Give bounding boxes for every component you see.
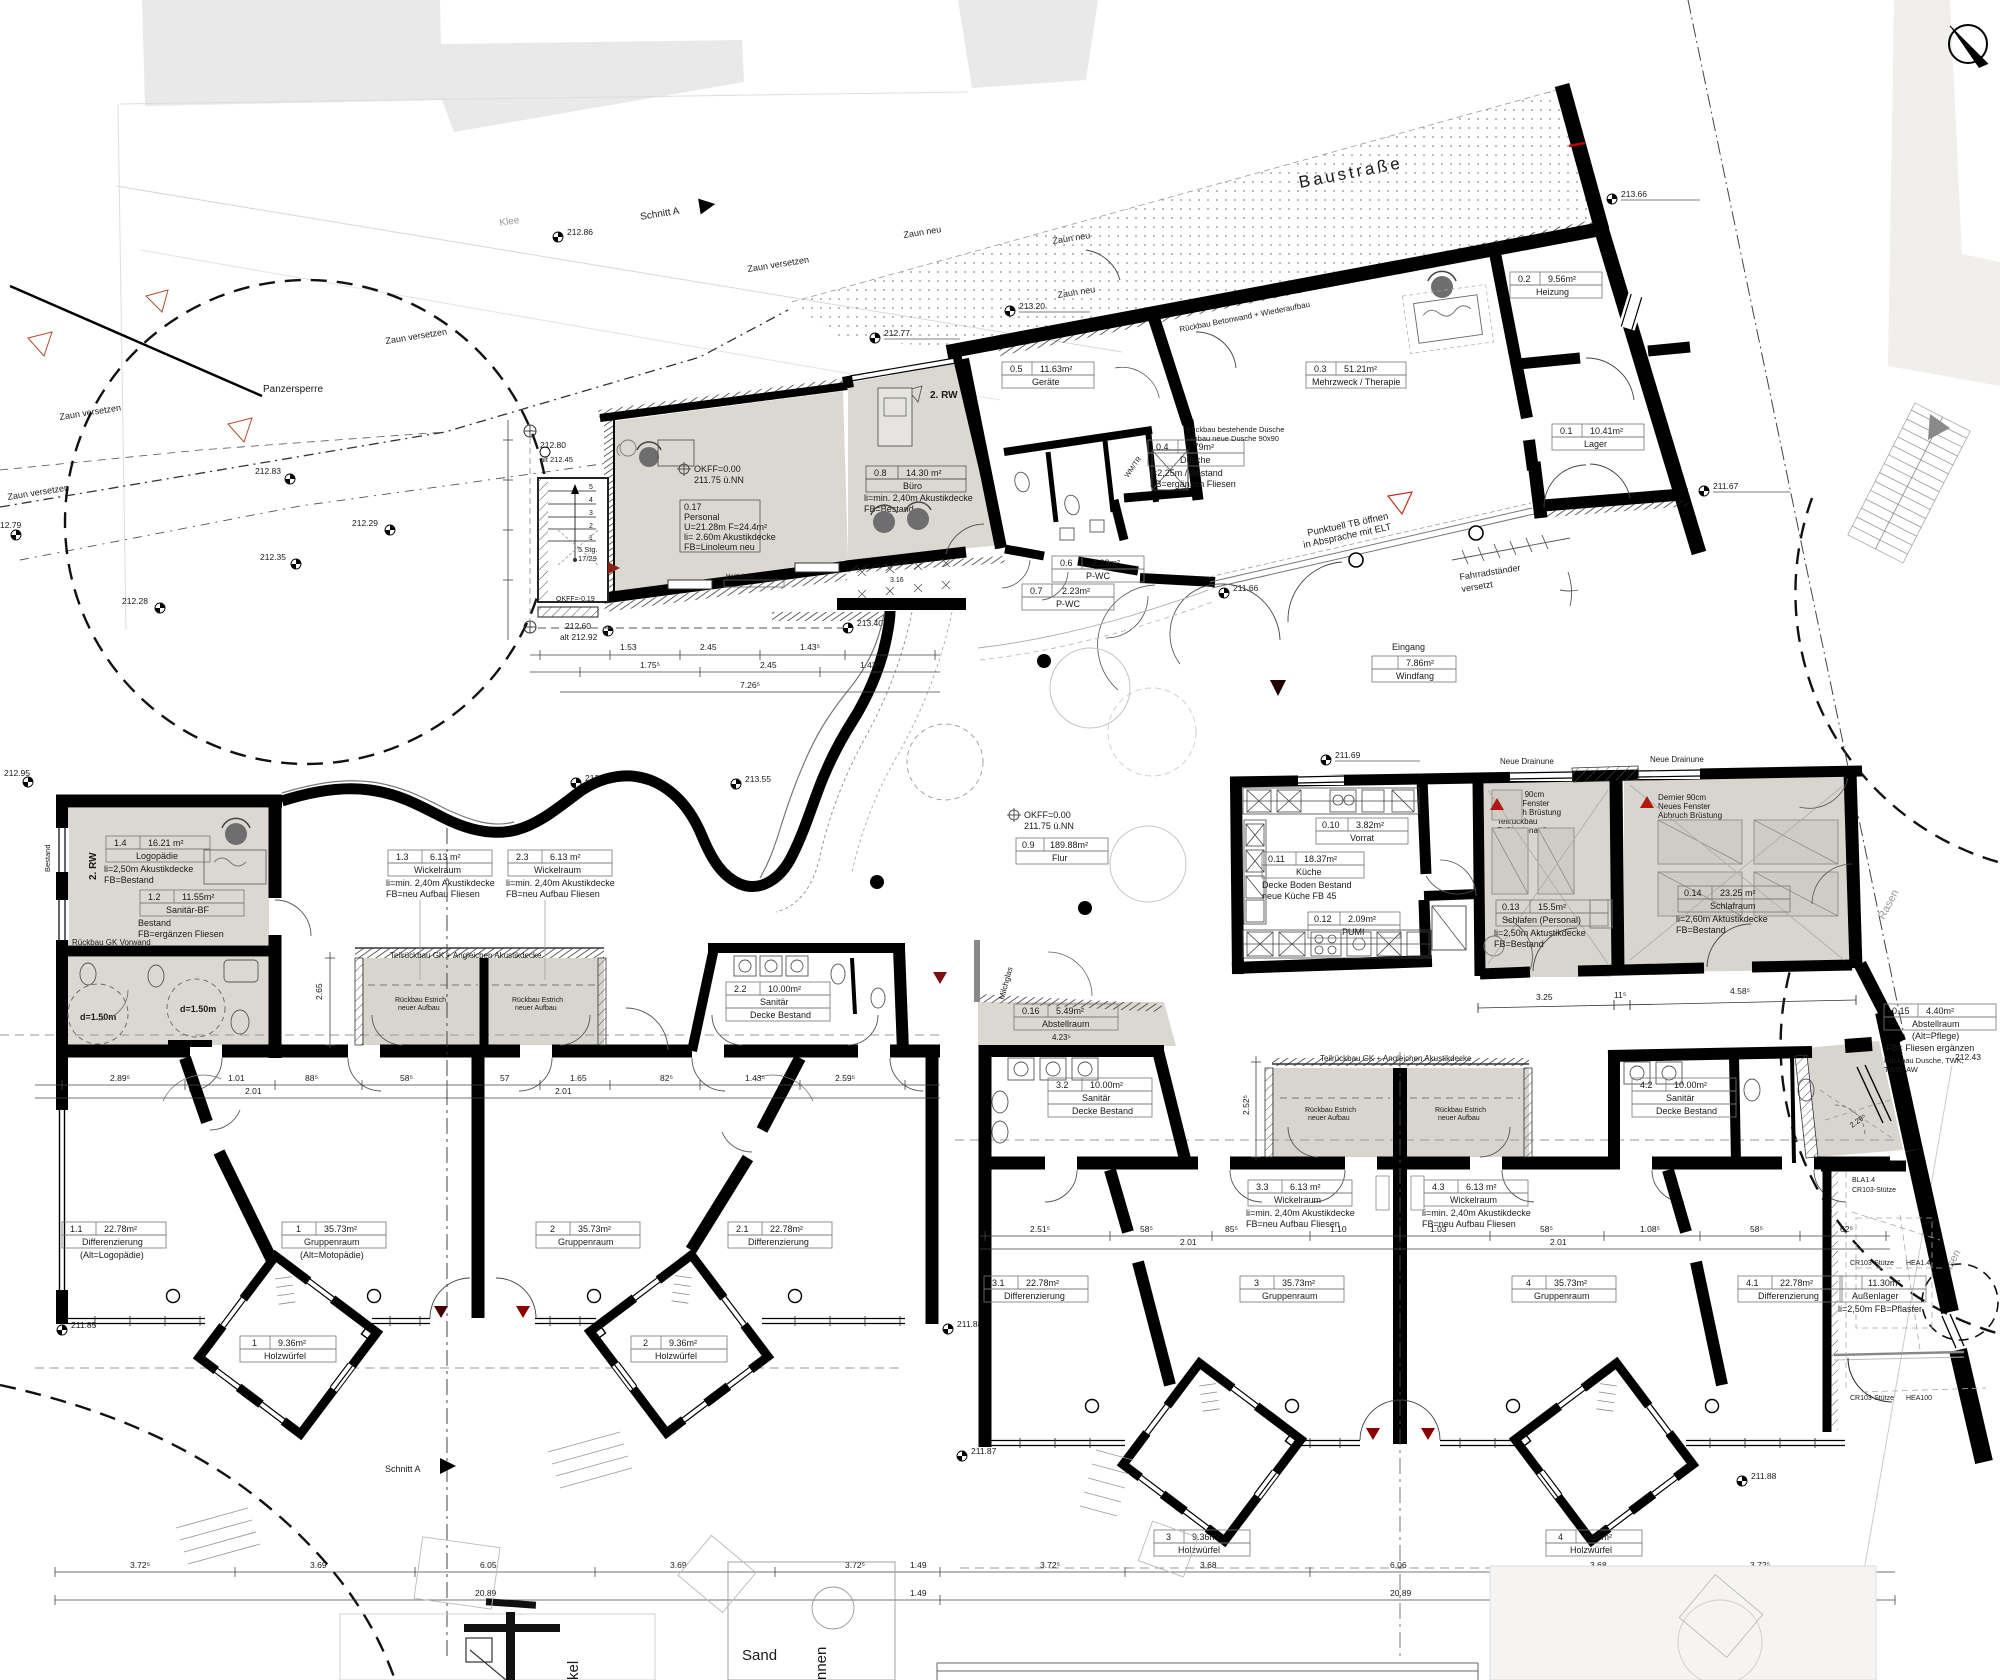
svg-text:0.13: 0.13 xyxy=(1502,902,1520,912)
svg-text:213.66: 213.66 xyxy=(1621,189,1647,199)
svg-text:2.1: 2.1 xyxy=(736,1224,749,1234)
svg-text:2: 2 xyxy=(550,1224,555,1234)
svg-text:1.10: 1.10 xyxy=(1330,1224,1347,1234)
svg-text:211.85: 211.85 xyxy=(71,1320,97,1330)
svg-text:11.30m²: 11.30m² xyxy=(1868,1278,1900,1288)
svg-text:9.56m²: 9.56m² xyxy=(1548,274,1576,284)
svg-text:7.26⁵: 7.26⁵ xyxy=(740,680,760,690)
svg-text:212.95: 212.95 xyxy=(4,768,30,778)
svg-text:1.1: 1.1 xyxy=(70,1224,83,1234)
svg-text:1.03: 1.03 xyxy=(1430,1224,1447,1234)
svg-text:22.78m²: 22.78m² xyxy=(1780,1278,1813,1288)
svg-text:212.86: 212.86 xyxy=(567,227,593,237)
svg-text:Rückbau Estrich: Rückbau Estrich xyxy=(395,997,446,1004)
svg-text:3.16: 3.16 xyxy=(890,577,904,584)
svg-text:211.67: 211.67 xyxy=(1713,481,1739,491)
svg-text:5.49m²: 5.49m² xyxy=(1056,1006,1084,1016)
svg-text:Holzwürfel: Holzwürfel xyxy=(1178,1545,1220,1555)
svg-text:Büro: Büro xyxy=(903,481,922,491)
svg-text:1.43⁵: 1.43⁵ xyxy=(745,1073,765,1083)
svg-text:1.3: 1.3 xyxy=(396,852,409,862)
svg-text:212.29: 212.29 xyxy=(352,518,378,528)
svg-text:Vorrat: Vorrat xyxy=(1350,833,1375,843)
svg-text:Schlafraum: Schlafraum xyxy=(1710,901,1756,911)
svg-text:d=1.50m: d=1.50m xyxy=(180,1004,216,1014)
svg-text:11.55m²: 11.55m² xyxy=(182,892,214,902)
svg-text:neuer Aufbau: neuer Aufbau xyxy=(515,1005,557,1012)
svg-text:6.05: 6.05 xyxy=(480,1560,497,1570)
svg-text:1.49: 1.49 xyxy=(910,1588,927,1598)
svg-text:Rückbau GK Vorwand: Rückbau GK Vorwand xyxy=(72,938,151,947)
svg-text:82⁵: 82⁵ xyxy=(660,1073,673,1083)
svg-text:3: 3 xyxy=(1166,1532,1171,1542)
svg-text:Holzwürfel: Holzwürfel xyxy=(655,1351,697,1361)
svg-text:FB=ergänzen Fliesen: FB=ergänzen Fliesen xyxy=(1150,479,1236,489)
svg-text:212.35: 212.35 xyxy=(260,552,286,562)
svg-text:0.17: 0.17 xyxy=(684,502,702,512)
svg-text:3.79m²: 3.79m² xyxy=(1186,442,1214,452)
svg-text:3.72⁵: 3.72⁵ xyxy=(130,1560,150,1570)
svg-text:FB=Bestand: FB=Bestand xyxy=(104,875,154,885)
svg-text:10.41m²: 10.41m² xyxy=(1590,426,1623,436)
svg-text:211.87: 211.87 xyxy=(971,1446,997,1456)
svg-text:OKFF=0.00: OKFF=0.00 xyxy=(694,464,741,474)
svg-text:Holzwürfel: Holzwürfel xyxy=(264,1351,306,1361)
svg-text:li=min. 2,40m Akustikdecke: li=min. 2,40m Akustikdecke xyxy=(1246,1208,1355,1218)
svg-text:0.4: 0.4 xyxy=(1156,442,1169,452)
svg-text:58⁵: 58⁵ xyxy=(1750,1224,1763,1234)
svg-text:Bestand: Bestand xyxy=(138,918,171,928)
svg-text:0.11: 0.11 xyxy=(1268,854,1285,864)
svg-text:2.09m²: 2.09m² xyxy=(1348,914,1376,924)
svg-text:22.78m²: 22.78m² xyxy=(1026,1278,1059,1288)
svg-text:Rückbau Dusche, TWK,: Rückbau Dusche, TWK, xyxy=(1884,1056,1964,1065)
svg-text:22.78m²: 22.78m² xyxy=(770,1224,803,1234)
svg-text:Dernier 90cm: Dernier 90cm xyxy=(1658,793,1706,802)
svg-text:211.75 ü.NN: 211.75 ü.NN xyxy=(1024,821,1074,831)
svg-text:Außenlager: Außenlager xyxy=(1852,1291,1899,1301)
svg-text:2: 2 xyxy=(589,523,593,530)
svg-text:6.13 m²: 6.13 m² xyxy=(1290,1182,1321,1192)
svg-text:neuer Aufbau: neuer Aufbau xyxy=(398,1005,440,1012)
svg-text:211.75 ü.NN: 211.75 ü.NN xyxy=(694,475,744,485)
svg-text:Holzwürfel: Holzwürfel xyxy=(1570,1545,1612,1555)
svg-text:3.82m²: 3.82m² xyxy=(1356,820,1384,830)
svg-text:211.88: 211.88 xyxy=(1751,1471,1777,1481)
svg-text:Windfang: Windfang xyxy=(1396,671,1434,681)
svg-text:1.08⁵: 1.08⁵ xyxy=(1640,1224,1660,1234)
svg-text:FB= Fliesen ergänzen: FB= Fliesen ergänzen xyxy=(1886,1043,1974,1053)
svg-text:alt 212.92: alt 212.92 xyxy=(560,632,598,642)
svg-text:Gruppenraum: Gruppenraum xyxy=(558,1237,614,1247)
svg-text:35.73m²: 35.73m² xyxy=(324,1224,357,1234)
svg-text:189.88m²: 189.88m² xyxy=(1050,840,1088,850)
svg-text:35.73m²: 35.73m² xyxy=(1282,1278,1315,1288)
svg-text:1.01: 1.01 xyxy=(228,1073,245,1083)
svg-text:Decke Bestand: Decke Bestand xyxy=(750,1010,811,1020)
svg-text:li=2,50m FB=Pflaster: li=2,50m FB=Pflaster xyxy=(1838,1304,1922,1314)
svg-text:li= 2.60m Akustikdecke: li= 2.60m Akustikdecke xyxy=(684,532,776,542)
svg-text:0.2: 0.2 xyxy=(1518,274,1531,284)
svg-text:Eingang: Eingang xyxy=(1392,642,1425,652)
svg-text:20.89: 20.89 xyxy=(1390,1588,1412,1598)
svg-text:2.23m²: 2.23m² xyxy=(1062,586,1090,596)
svg-text:Teilrückbau GK + Angleichen Ak: Teilrückbau GK + Angleichen Akustikdecke xyxy=(390,951,542,960)
svg-text:0.6: 0.6 xyxy=(1060,558,1073,568)
svg-text:35.73m²: 35.73m² xyxy=(578,1224,611,1234)
svg-text:2.65: 2.65 xyxy=(314,983,324,1000)
svg-text:2.3: 2.3 xyxy=(516,852,529,862)
svg-text:211.66: 211.66 xyxy=(1233,583,1259,593)
svg-text:10.00m²: 10.00m² xyxy=(1090,1080,1123,1090)
svg-text:HEA1.4: HEA1.4 xyxy=(1906,1260,1930,1267)
svg-text:0.14: 0.14 xyxy=(1684,888,1702,898)
svg-text:Differenzierung: Differenzierung xyxy=(82,1237,143,1247)
svg-text:li=2,50m Aktustikdecke: li=2,50m Aktustikdecke xyxy=(1494,928,1586,938)
svg-text:2.01: 2.01 xyxy=(245,1086,262,1096)
svg-text:Umbau neue Dusche 90x90: Umbau neue Dusche 90x90 xyxy=(1186,434,1279,443)
svg-text:li=2,60m Aktustikdecke: li=2,60m Aktustikdecke xyxy=(1676,914,1768,924)
svg-text:CR103-Stütze: CR103-Stütze xyxy=(1852,1187,1896,1194)
svg-text:Wickelraum: Wickelraum xyxy=(414,865,461,875)
svg-text:4: 4 xyxy=(1526,1278,1531,1288)
svg-text:35.73m²: 35.73m² xyxy=(1554,1278,1587,1288)
svg-text:85⁵: 85⁵ xyxy=(1225,1224,1238,1234)
svg-text:2.89⁵: 2.89⁵ xyxy=(110,1073,130,1083)
svg-text:6.06: 6.06 xyxy=(1390,1560,1407,1570)
svg-text:P-WC: P-WC xyxy=(1056,599,1080,609)
svg-text:6.13 m²: 6.13 m² xyxy=(550,852,581,862)
svg-text:4.40m²: 4.40m² xyxy=(1926,1006,1954,1016)
svg-text:211.69: 211.69 xyxy=(1335,750,1361,760)
svg-text:2.01: 2.01 xyxy=(1550,1237,1567,1247)
svg-text:4: 4 xyxy=(589,497,593,504)
svg-text:10.00m²: 10.00m² xyxy=(768,984,801,994)
svg-text:Rückbau bestehende Dusche: Rückbau bestehende Dusche xyxy=(1186,425,1284,434)
svg-text:Schlafen (Personal): Schlafen (Personal) xyxy=(1502,915,1581,925)
svg-text:Sand: Sand xyxy=(742,1647,777,1664)
svg-text:2.01: 2.01 xyxy=(555,1086,572,1096)
svg-text:2. RW: 2. RW xyxy=(930,390,958,401)
svg-text:22.78m²: 22.78m² xyxy=(104,1224,137,1234)
svg-text:Lager: Lager xyxy=(1584,439,1607,449)
svg-text:58⁵: 58⁵ xyxy=(400,1073,413,1083)
svg-text:0.9: 0.9 xyxy=(1022,840,1035,850)
svg-text:1.53: 1.53 xyxy=(620,642,637,652)
svg-text:Gruppenraum: Gruppenraum xyxy=(1534,1291,1590,1301)
svg-text:CR103-Stütze: CR103-Stütze xyxy=(1850,1395,1894,1402)
svg-text:3.69: 3.69 xyxy=(310,1560,327,1570)
svg-text:nnen: nnen xyxy=(813,1647,830,1680)
svg-text:0.1: 0.1 xyxy=(1560,426,1573,436)
svg-text:Wickelraum: Wickelraum xyxy=(1274,1195,1321,1205)
svg-text:Rückbau Estrich: Rückbau Estrich xyxy=(512,997,563,1004)
svg-text:OKFF=-0.19: OKFF=-0.19 xyxy=(556,596,595,603)
svg-text:58⁵: 58⁵ xyxy=(1140,1224,1153,1234)
svg-text:FB=Bestand: FB=Bestand xyxy=(1494,939,1544,949)
svg-text:15.5m²: 15.5m² xyxy=(1538,902,1566,912)
svg-text:212.60: 212.60 xyxy=(565,621,591,631)
svg-text:213.20: 213.20 xyxy=(1019,301,1045,311)
svg-text:4.3: 4.3 xyxy=(1432,1182,1445,1192)
svg-text:Gruppenraum: Gruppenraum xyxy=(304,1237,360,1247)
svg-text:neue Küche FB 45: neue Küche FB 45 xyxy=(1262,891,1337,901)
svg-text:0.5: 0.5 xyxy=(1010,364,1023,374)
svg-text:4.2: 4.2 xyxy=(1640,1080,1653,1090)
svg-text:FB=neu Aufbau Fliesen: FB=neu Aufbau Fliesen xyxy=(506,889,600,899)
svg-text:2.45: 2.45 xyxy=(700,642,717,652)
svg-text:FB=Bestand: FB=Bestand xyxy=(1676,925,1726,935)
svg-text:Dusche: Dusche xyxy=(1180,455,1211,465)
svg-text:OKFF=0.00: OKFF=0.00 xyxy=(1024,810,1071,820)
svg-text:1.49: 1.49 xyxy=(910,1560,927,1570)
svg-text:li=min. 2,40m Akustikdecke: li=min. 2,40m Akustikdecke xyxy=(386,878,495,888)
svg-text:Decke Bestand: Decke Bestand xyxy=(1072,1106,1133,1116)
svg-text:Logopädie: Logopädie xyxy=(136,851,178,861)
svg-text:P-WC: P-WC xyxy=(1086,571,1110,581)
svg-text:1: 1 xyxy=(252,1338,257,1348)
svg-text:Sanitär-BF: Sanitär-BF xyxy=(166,905,210,915)
svg-text:5: 5 xyxy=(589,484,593,491)
svg-text:0.3: 0.3 xyxy=(1314,364,1327,374)
svg-text:14.30 m²: 14.30 m² xyxy=(906,468,942,478)
svg-text:57: 57 xyxy=(500,1073,510,1083)
svg-text:4: 4 xyxy=(1558,1532,1563,1542)
svg-text:7.86m²: 7.86m² xyxy=(1406,658,1434,668)
svg-text:Abstellraum: Abstellraum xyxy=(1912,1019,1960,1029)
svg-text:Abstellraum: Abstellraum xyxy=(1042,1019,1090,1029)
svg-text:kel: kel xyxy=(565,1661,582,1680)
svg-text:3: 3 xyxy=(589,510,593,517)
svg-text:FB=neu Aufbau Fliesen: FB=neu Aufbau Fliesen xyxy=(1246,1219,1340,1229)
svg-text:Sanitär: Sanitär xyxy=(760,997,789,1007)
svg-text:(Alt=Logopädie): (Alt=Logopädie) xyxy=(80,1250,144,1260)
svg-text:Teilrückbau GK + Angleichen Ak: Teilrückbau GK + Angleichen Akustikdecke xyxy=(1320,1054,1472,1063)
svg-text:3.2: 3.2 xyxy=(1056,1080,1069,1090)
svg-text:Bestand: Bestand xyxy=(43,844,52,872)
svg-text:2.59⁵: 2.59⁵ xyxy=(835,1073,855,1083)
svg-text:FB=ergänzen Fliesen: FB=ergänzen Fliesen xyxy=(138,929,224,939)
svg-text:2: 2 xyxy=(643,1338,648,1348)
svg-text:212.28: 212.28 xyxy=(122,596,148,606)
svg-text:11.63m²: 11.63m² xyxy=(1040,364,1072,374)
svg-text:1.4: 1.4 xyxy=(114,838,127,848)
svg-text:Personal: Personal xyxy=(684,512,720,522)
svg-text:3: 3 xyxy=(1254,1278,1259,1288)
svg-text:Schnitt A: Schnitt A xyxy=(385,1464,421,1474)
svg-text:3.3: 3.3 xyxy=(1256,1182,1269,1192)
svg-text:3.72⁵: 3.72⁵ xyxy=(1040,1560,1060,1570)
svg-text:FB=Linoleum neu: FB=Linoleum neu xyxy=(684,542,755,552)
svg-text:16.21 m²: 16.21 m² xyxy=(148,838,184,848)
svg-text:1: 1 xyxy=(296,1224,301,1234)
svg-text:Panzersperre: Panzersperre xyxy=(263,384,323,395)
svg-text:18.37m²: 18.37m² xyxy=(1304,854,1337,864)
svg-text:2.45: 2.45 xyxy=(760,660,777,670)
svg-text:2. RW: 2. RW xyxy=(88,852,99,880)
svg-text:Heizung: Heizung xyxy=(1536,287,1569,297)
svg-text:1: 1 xyxy=(589,535,593,542)
svg-text:l=2,25m / Bestand: l=2,25m / Bestand xyxy=(1150,468,1223,478)
svg-text:11⁵: 11⁵ xyxy=(1614,990,1626,1000)
svg-text:62⁵: 62⁵ xyxy=(1840,1224,1853,1234)
svg-text:TWW, AW: TWW, AW xyxy=(1884,1065,1919,1074)
svg-text:3.1: 3.1 xyxy=(992,1278,1005,1288)
svg-text:213.55: 213.55 xyxy=(745,774,771,784)
svg-text:Geräte: Geräte xyxy=(1032,377,1060,387)
svg-text:U=21.28m F=24.4m²: U=21.28m F=24.4m² xyxy=(684,522,767,532)
svg-text:Küche: Küche xyxy=(1296,867,1322,877)
svg-text:10.00m²: 10.00m² xyxy=(1674,1080,1707,1090)
svg-text:212.77: 212.77 xyxy=(884,328,910,338)
svg-text:4.58⁵: 4.58⁵ xyxy=(1730,986,1750,996)
svg-text:neuer Aufbau: neuer Aufbau xyxy=(1438,1115,1480,1122)
svg-text:3.25: 3.25 xyxy=(1536,992,1553,1002)
svg-text:Sanitär: Sanitär xyxy=(1082,1093,1111,1103)
svg-text:Differenzierung: Differenzierung xyxy=(748,1237,809,1247)
svg-text:Rückbau Estrich: Rückbau Estrich xyxy=(1435,1107,1486,1114)
svg-text:1.65: 1.65 xyxy=(570,1073,587,1083)
svg-text:0.12: 0.12 xyxy=(1314,914,1332,924)
svg-text:Neues Fenster: Neues Fenster xyxy=(1658,802,1711,811)
svg-text:0.10: 0.10 xyxy=(1322,820,1340,830)
svg-text:212.83: 212.83 xyxy=(255,466,281,476)
svg-text:3.72⁵: 3.72⁵ xyxy=(845,1560,865,1570)
svg-text:6.13 m²: 6.13 m² xyxy=(430,852,461,862)
svg-text:1.43⁵: 1.43⁵ xyxy=(800,642,820,652)
svg-text:neuer Aufbau: neuer Aufbau xyxy=(1308,1115,1350,1122)
svg-text:6.13 m²: 6.13 m² xyxy=(1466,1182,1497,1192)
svg-text:Sanitär: Sanitär xyxy=(1666,1093,1695,1103)
svg-text:0.7: 0.7 xyxy=(1030,586,1043,596)
svg-text:FB=neu Aufbau Fliesen: FB=neu Aufbau Fliesen xyxy=(386,889,480,899)
svg-text:51.21m²: 51.21m² xyxy=(1344,364,1377,374)
svg-text:BLA1.4: BLA1.4 xyxy=(1852,1177,1875,1184)
svg-text:Gruppenraum: Gruppenraum xyxy=(1262,1291,1318,1301)
svg-text:Decke Bestand: Decke Bestand xyxy=(1656,1106,1717,1116)
svg-text:HEA100: HEA100 xyxy=(1906,1395,1932,1402)
svg-text:li=2,50m Akustikdecke: li=2,50m Akustikdecke xyxy=(104,864,193,874)
svg-text:5 Stg.: 5 Stg. xyxy=(578,545,598,554)
svg-text:2.01: 2.01 xyxy=(1180,1237,1197,1247)
svg-text:Flur: Flur xyxy=(1052,853,1068,863)
svg-text:2.2: 2.2 xyxy=(734,984,747,994)
svg-text:CR103-Stütze: CR103-Stütze xyxy=(1850,1260,1894,1267)
svg-text:2.52⁵: 2.52⁵ xyxy=(1241,1095,1251,1115)
svg-text:3.68: 3.68 xyxy=(1200,1560,1217,1570)
svg-text:1.75⁵: 1.75⁵ xyxy=(640,660,660,670)
svg-text:9.36m²: 9.36m² xyxy=(1584,1532,1612,1542)
svg-text:0.16: 0.16 xyxy=(1022,1006,1040,1016)
svg-text:212.80: 212.80 xyxy=(540,440,566,450)
svg-text:li=min. 2,40m Akustikdecke: li=min. 2,40m Akustikdecke xyxy=(1422,1208,1531,1218)
svg-text:Wickelraum: Wickelraum xyxy=(534,865,581,875)
svg-text:PUMI: PUMI xyxy=(1342,927,1365,937)
svg-text:Mehrzweck / Therapie: Mehrzweck / Therapie xyxy=(1312,377,1400,387)
svg-text:1.2: 1.2 xyxy=(148,892,161,902)
svg-text:2.23m²: 2.23m² xyxy=(1092,558,1120,568)
svg-text:4.1: 4.1 xyxy=(1746,1278,1759,1288)
svg-text:Decke Boden Bestand: Decke Boden Bestand xyxy=(1262,880,1352,890)
svg-text:Wickelraum: Wickelraum xyxy=(1450,1195,1497,1205)
svg-text:58⁵: 58⁵ xyxy=(1540,1224,1553,1234)
svg-text:0.8: 0.8 xyxy=(874,468,887,478)
svg-text:Neue Drainune: Neue Drainune xyxy=(1500,757,1554,766)
svg-text:12.79: 12.79 xyxy=(0,520,22,530)
svg-text:0.15: 0.15 xyxy=(1892,1006,1910,1016)
svg-text:Differenzierung: Differenzierung xyxy=(1004,1291,1065,1301)
svg-text:(Alt=Pflege): (Alt=Pflege) xyxy=(1912,1031,1959,1041)
svg-text:1.43⁵: 1.43⁵ xyxy=(860,660,880,670)
svg-text:Heizkörper: Heizkörper xyxy=(726,574,755,580)
svg-text:9.36m²: 9.36m² xyxy=(669,1338,697,1348)
svg-text:alt 212.45: alt 212.45 xyxy=(540,455,573,464)
svg-text:4.23⁵: 4.23⁵ xyxy=(1052,1033,1071,1042)
svg-text:li=min. 2,40m Akustikdecke: li=min. 2,40m Akustikdecke xyxy=(506,878,615,888)
svg-text:Rückbau Estrich: Rückbau Estrich xyxy=(1305,1107,1356,1114)
svg-text:23.25 m²: 23.25 m² xyxy=(1720,888,1756,898)
svg-text:88⁵: 88⁵ xyxy=(305,1073,318,1083)
svg-text:Neue Drainune: Neue Drainune xyxy=(1650,755,1704,764)
svg-text:(Alt=Motopädie): (Alt=Motopädie) xyxy=(300,1250,364,1260)
svg-text:9.36m²: 9.36m² xyxy=(278,1338,306,1348)
svg-text:2.51⁵: 2.51⁵ xyxy=(1030,1224,1050,1234)
svg-text:Differenzierung: Differenzierung xyxy=(1758,1291,1819,1301)
